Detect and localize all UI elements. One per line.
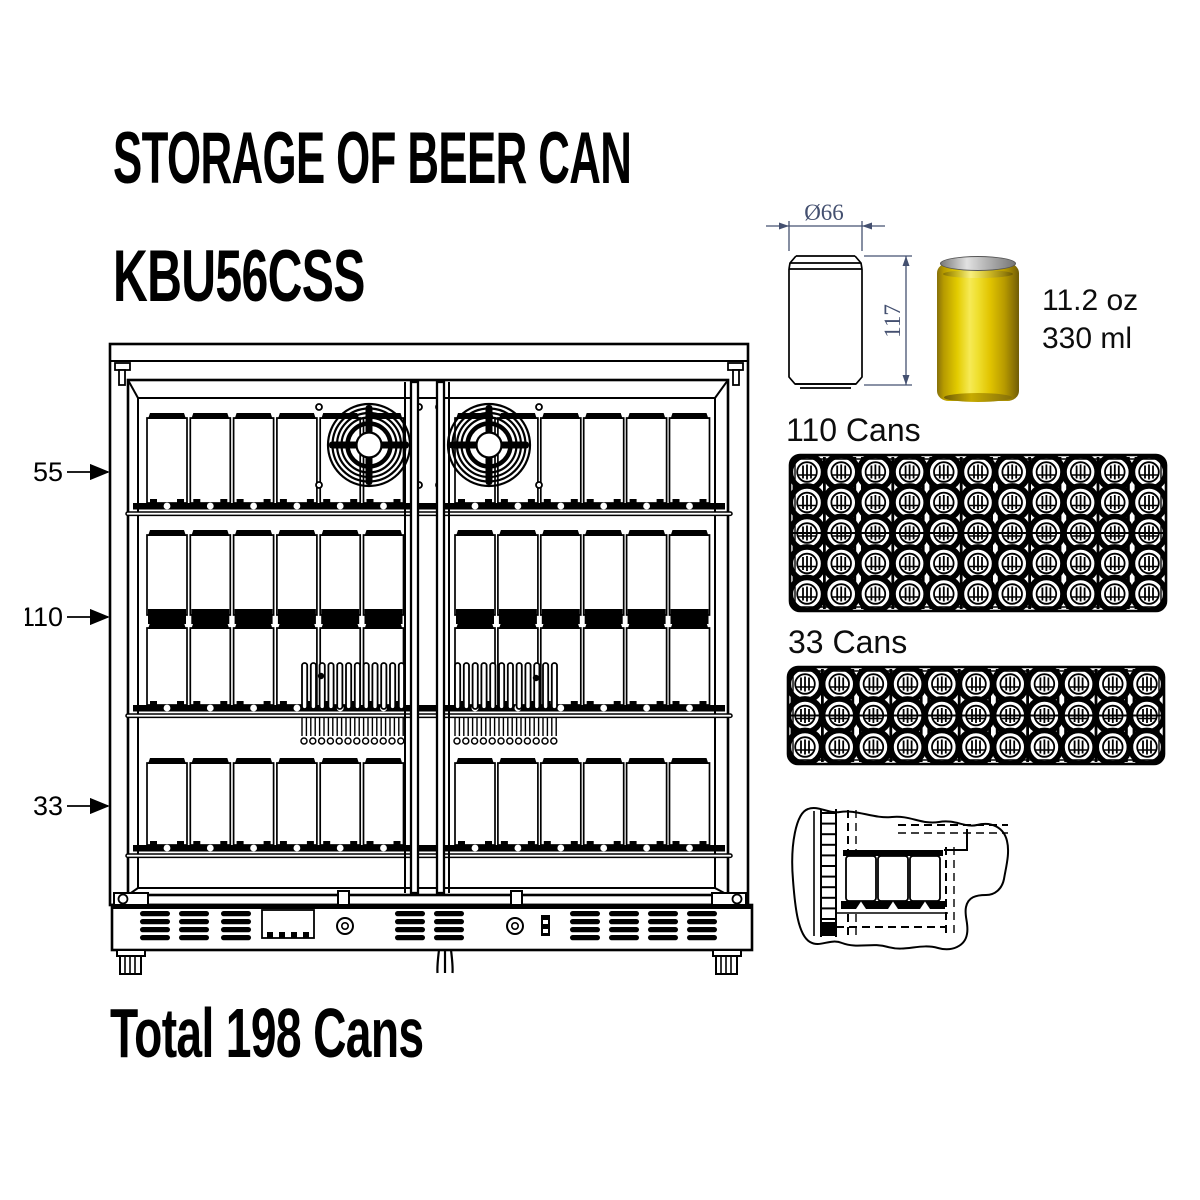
can-size-ml: 330 ml xyxy=(1042,320,1138,358)
yellow-beer-can-image xyxy=(937,256,1019,401)
can-size-text: 11.2 oz 330 ml xyxy=(1042,282,1138,358)
height-dimension-label: 117 xyxy=(880,304,905,338)
label-33-text: 33 xyxy=(33,791,63,821)
shelf-label-55: 55 xyxy=(33,457,108,487)
corner-detail-diagram xyxy=(780,795,1015,960)
model-number: KBU56CSS xyxy=(113,240,365,313)
can-body xyxy=(937,263,1019,401)
can-neck-shading xyxy=(943,270,1013,278)
can-bottom-rim xyxy=(944,393,1012,402)
total-capacity-label: Total 198 Cans xyxy=(110,998,423,1068)
tray-110-label: 110 Cans xyxy=(786,412,921,449)
diameter-dimension-label: Ø66 xyxy=(804,200,844,225)
tray-110-diagram xyxy=(788,453,1168,613)
shelf-capacity-labels: 55 110 33 xyxy=(25,457,108,821)
label-55-text: 55 xyxy=(33,457,63,487)
tray-33-label: 33 Cans xyxy=(788,624,907,661)
refrigerator-front-diagram: 55 110 33 xyxy=(25,340,765,985)
can-outline xyxy=(789,256,862,388)
shelf-label-110: 110 xyxy=(25,602,108,632)
page-title: STORAGE OF BEER CAN xyxy=(113,122,631,195)
shelf-label-33: 33 xyxy=(33,791,108,821)
can-size-oz: 11.2 oz xyxy=(1042,282,1138,320)
detail-cans-on-shelf xyxy=(841,850,945,909)
label-110-text: 110 xyxy=(25,602,63,632)
dimension-arrows xyxy=(779,223,910,386)
dimension-lines xyxy=(766,221,912,385)
can-dimension-diagram: Ø66 117 xyxy=(760,195,930,410)
tray-33-diagram xyxy=(786,665,1166,766)
can-lid xyxy=(940,256,1016,271)
